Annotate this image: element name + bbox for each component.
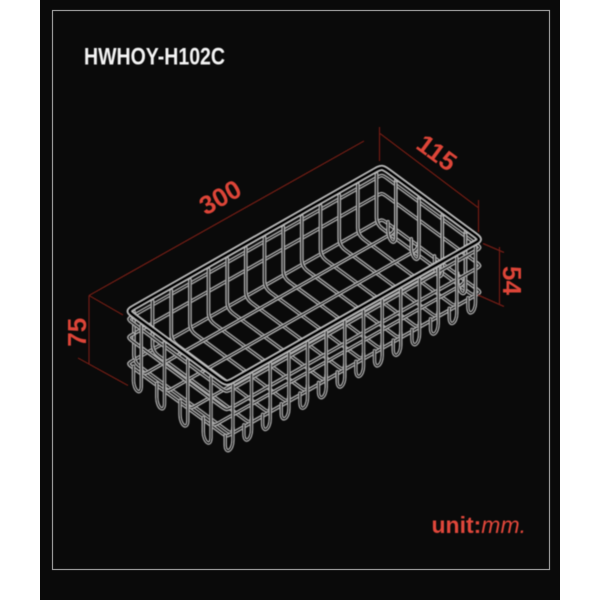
- svg-text:HWHOY-H102C: HWHOY-H102C: [84, 44, 225, 71]
- svg-text:54: 54: [497, 266, 527, 295]
- svg-text:unit:mm.: unit:mm.: [431, 512, 526, 538]
- svg-text:75: 75: [62, 318, 92, 347]
